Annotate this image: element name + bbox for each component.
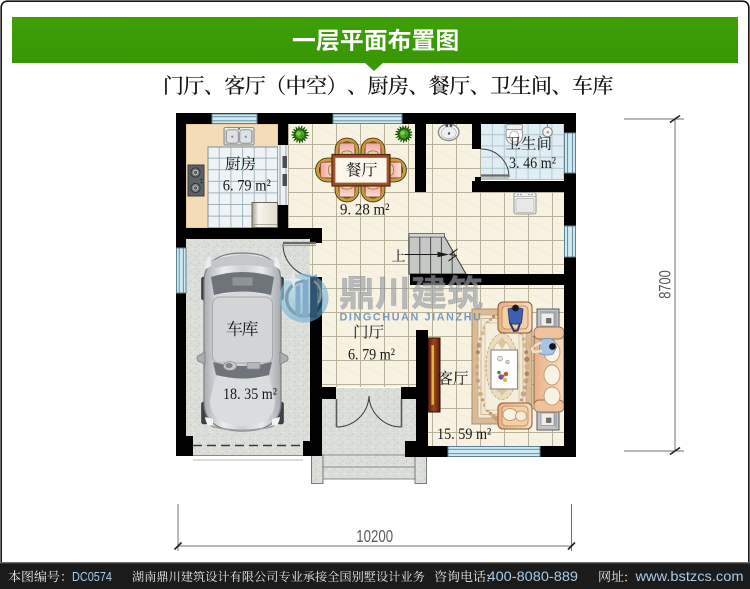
svg-text:DC0574: DC0574 bbox=[72, 570, 112, 584]
svg-text:18. 35 m²: 18. 35 m² bbox=[223, 386, 277, 403]
svg-text:www.bstzcs.com: www.bstzcs.com bbox=[634, 568, 743, 584]
svg-text:3. 46 m²: 3. 46 m² bbox=[509, 155, 556, 172]
svg-text:15. 59 m²: 15. 59 m² bbox=[437, 426, 492, 443]
svg-text:10200: 10200 bbox=[356, 526, 393, 546]
svg-text:400-8080-889: 400-8080-889 bbox=[488, 569, 579, 584]
svg-text:6. 79 m²: 6. 79 m² bbox=[223, 177, 271, 194]
svg-text:6. 79 m²: 6. 79 m² bbox=[348, 346, 395, 363]
svg-text:9. 28 m²: 9. 28 m² bbox=[340, 202, 390, 219]
svg-text:8700: 8700 bbox=[655, 270, 674, 299]
svg-text:DINGCHUAN JIANZHU: DINGCHUAN JIANZHU bbox=[340, 312, 483, 324]
